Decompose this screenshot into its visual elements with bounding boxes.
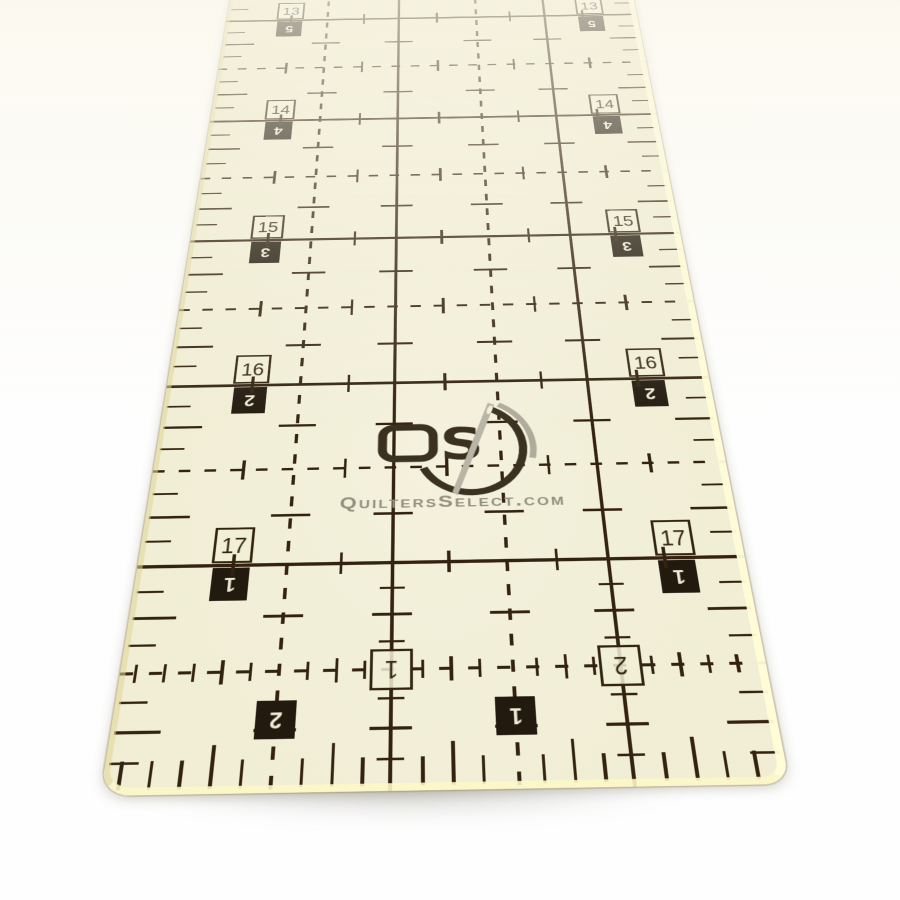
quarter-inch-tick (604, 636, 630, 639)
quarter-inch-tick (438, 112, 441, 124)
mirror-number-box: 1 (209, 567, 250, 601)
edge-tick (710, 530, 736, 533)
quarter-inch-tick (490, 610, 530, 613)
quarter-inch-tick (471, 203, 503, 205)
edge-tick (675, 417, 714, 420)
quarter-inch-tick (334, 658, 338, 682)
edge-tick (678, 356, 702, 358)
edge-tick (707, 607, 751, 610)
edge-tick (421, 756, 425, 785)
quarter-inch-tick (508, 11, 511, 21)
quarter-inch-tick (358, 113, 361, 125)
edge-tick (627, 74, 646, 76)
inch-number-box: 16 (625, 348, 665, 377)
quarter-inch-tick (532, 296, 536, 311)
edge-tick (201, 193, 222, 195)
edge-tick (739, 690, 768, 693)
quarter-inch-tick (443, 373, 446, 390)
quarter-inch-tick (298, 206, 330, 208)
quarter-inch-tick (611, 693, 638, 696)
edge-tick (752, 751, 761, 780)
column-number-box: 1 (369, 649, 413, 691)
quarter-inch-tick (527, 228, 531, 242)
quarter-inch-tick (379, 270, 412, 272)
edge-tick (661, 337, 698, 339)
edge-tick (672, 319, 695, 321)
eighth-inch-tick (421, 660, 424, 678)
quarter-inch-tick (447, 551, 451, 573)
edge-tick (638, 200, 672, 202)
photo-scene: 1351351441441531531621621711711221 S Qui… (0, 0, 900, 900)
quarter-inch-tick (517, 110, 520, 122)
edge-tick (719, 580, 746, 583)
edge-tick (614, 2, 632, 3)
column-number-box: 2 (597, 645, 645, 687)
edge-tick (570, 739, 577, 783)
edge-tick (659, 248, 681, 250)
edge-tick (360, 757, 364, 786)
eighth-inch-tick (535, 658, 539, 676)
edge-tick (196, 224, 217, 226)
edge-tick (185, 291, 207, 293)
edge-tick (729, 634, 757, 637)
quarter-inch-tick (521, 167, 524, 180)
inch-number-box: 15 (605, 209, 641, 233)
edge-tick (116, 762, 124, 791)
eighth-inch-tick (478, 659, 482, 677)
quarter-inch-tick (440, 230, 443, 244)
inch-number-box: 13 (574, 0, 604, 14)
quarter-inch-tick (363, 14, 365, 24)
quarter-inch-tick (374, 512, 413, 515)
edge-tick (215, 107, 234, 109)
edge-tick (627, 141, 659, 143)
edge-tick (145, 540, 171, 543)
quarter-inch-tick (292, 272, 326, 274)
half-inch-line (120, 661, 766, 675)
edge-tick (686, 396, 710, 398)
quarter-inch-tick (544, 142, 575, 144)
quarter-inch-tick (350, 299, 353, 314)
edge-tick (198, 208, 231, 210)
edge-tick (173, 365, 197, 367)
quarter-inch-tick (378, 697, 405, 700)
edge-tick (132, 617, 176, 620)
quarter-inch-tick (449, 656, 453, 680)
quarter-inch-tick (617, 753, 645, 756)
edge-tick (693, 439, 718, 441)
quarter-inch-tick (303, 147, 334, 149)
edge-tick (637, 127, 657, 129)
quarter-inch-tick (361, 61, 364, 72)
edge-tick (231, 9, 249, 10)
edge-tick (208, 745, 216, 789)
quarter-inch-tick (463, 40, 491, 42)
half-inch-line (201, 170, 668, 180)
quarter-inch-tick (477, 341, 512, 343)
edge-tick (618, 25, 636, 26)
edge-tick (128, 644, 156, 647)
edge-tick (481, 755, 486, 784)
quarter-inch-tick (466, 89, 495, 91)
edge-tick (147, 761, 154, 790)
quarter-inch-tick (377, 757, 405, 760)
edge-tick (114, 731, 161, 735)
quarter-inch-tick (356, 170, 359, 183)
edge-tick (665, 283, 687, 285)
quarter-inch-tick (380, 586, 405, 589)
edge-tick (649, 265, 684, 267)
half-inch-line (179, 300, 694, 311)
quarter-inch-tick (286, 344, 321, 346)
quarter-inch-tick (383, 91, 412, 93)
quarter-inch-tick (382, 145, 412, 147)
quarter-inch-tick (512, 59, 515, 70)
edge-tick (610, 37, 639, 39)
camera-tilt: 1351351441441531531621621711711221 S Qui… (0, 0, 900, 900)
quarter-inch-tick (538, 88, 567, 90)
edge-tick (137, 591, 164, 594)
logo-letter-q (382, 427, 433, 459)
quarter-inch-tick (369, 726, 412, 730)
edge-tick (176, 346, 213, 348)
edge-tick (149, 516, 190, 519)
edge-tick (632, 100, 651, 102)
inch-number-box: 17 (650, 520, 696, 556)
quarter-inch-tick (279, 424, 316, 427)
edge-tick (618, 87, 649, 89)
edge-tick (653, 216, 674, 218)
edge-tick (119, 701, 148, 704)
edge-tick (330, 743, 335, 787)
quarter-inch-tick (573, 419, 610, 422)
edge-tick (701, 483, 727, 486)
edge-tick (109, 762, 139, 765)
edge-tick (602, 753, 608, 782)
quarter-inch-tick (468, 144, 499, 146)
edge-tick (299, 758, 304, 787)
edge-tick (451, 741, 455, 785)
quarter-inch-tick (343, 459, 347, 478)
quarter-inch-tick (436, 13, 438, 23)
edge-tick (642, 155, 662, 157)
edge-tick (160, 448, 185, 450)
quarter-inch-tick (474, 268, 508, 270)
column-number-box: 1 (495, 696, 538, 735)
edge-tick (163, 426, 202, 429)
quarter-inch-tick (565, 339, 600, 341)
edge-tick (191, 257, 213, 259)
quarter-inch-tick (439, 168, 442, 181)
edge-tick (690, 506, 731, 509)
quarter-inch-tick (307, 92, 336, 94)
edge-tick (210, 134, 230, 136)
edge-tick (225, 44, 254, 46)
edge-tick (217, 94, 248, 96)
edge-tick (690, 737, 700, 781)
quarter-inch-tick (263, 614, 303, 617)
edge-tick (152, 493, 178, 496)
edge-tick (727, 720, 774, 724)
edge-tick (647, 185, 668, 187)
qs-logo: S (370, 401, 551, 502)
eighth-inch-tick (363, 661, 366, 679)
edge-tick (227, 32, 245, 33)
quarter-inch-tick (550, 202, 582, 204)
half-inch-line (218, 61, 646, 70)
quarter-inch-tick (485, 510, 524, 513)
ruler-grid: 1351351441441531531621621711711221 (100, 0, 790, 796)
quarter-inch-tick (353, 231, 356, 245)
inch-number-box: 14 (588, 94, 621, 114)
edge-tick (722, 751, 730, 780)
quarter-inch-tick (312, 42, 340, 44)
quarter-inch-tick (339, 552, 343, 574)
quarter-inch-tick (606, 722, 649, 726)
edge-tick (542, 754, 547, 783)
qs-logo-graphic: S (370, 401, 551, 502)
quilting-ruler: 1351351441441531531621621711711221 S Qui… (100, 0, 790, 796)
quarter-inch-tick (442, 298, 445, 313)
quarter-inch-tick (381, 205, 413, 207)
edge-tick (206, 163, 226, 165)
quarter-inch-tick (437, 60, 439, 71)
edge-tick (179, 327, 202, 329)
quarter-inch-tick (599, 583, 624, 586)
quarter-inch-tick (594, 609, 634, 612)
quarter-inch-tick (347, 375, 350, 392)
edge-tick (177, 761, 184, 790)
edge-tick (623, 49, 642, 50)
column-number-box: 2 (254, 700, 297, 739)
edge-tick (219, 81, 238, 83)
quarter-inch-tick (271, 514, 310, 517)
quarter-inch-tick (372, 613, 412, 616)
edge-tick (188, 273, 223, 275)
quarter-inch-tick (557, 267, 591, 269)
edge-tick (167, 405, 191, 407)
edge-tick (662, 752, 669, 781)
eighth-inch-tick (306, 662, 310, 680)
quarter-inch-tick (533, 38, 561, 40)
edge-tick (208, 148, 240, 150)
quarter-inch-tick (379, 640, 405, 643)
mirror-number-box: 2 (231, 387, 267, 414)
edge-tick (223, 56, 242, 57)
quarter-inch-tick (385, 41, 413, 43)
quarter-inch-tick (377, 342, 412, 344)
edge-tick (238, 759, 244, 788)
